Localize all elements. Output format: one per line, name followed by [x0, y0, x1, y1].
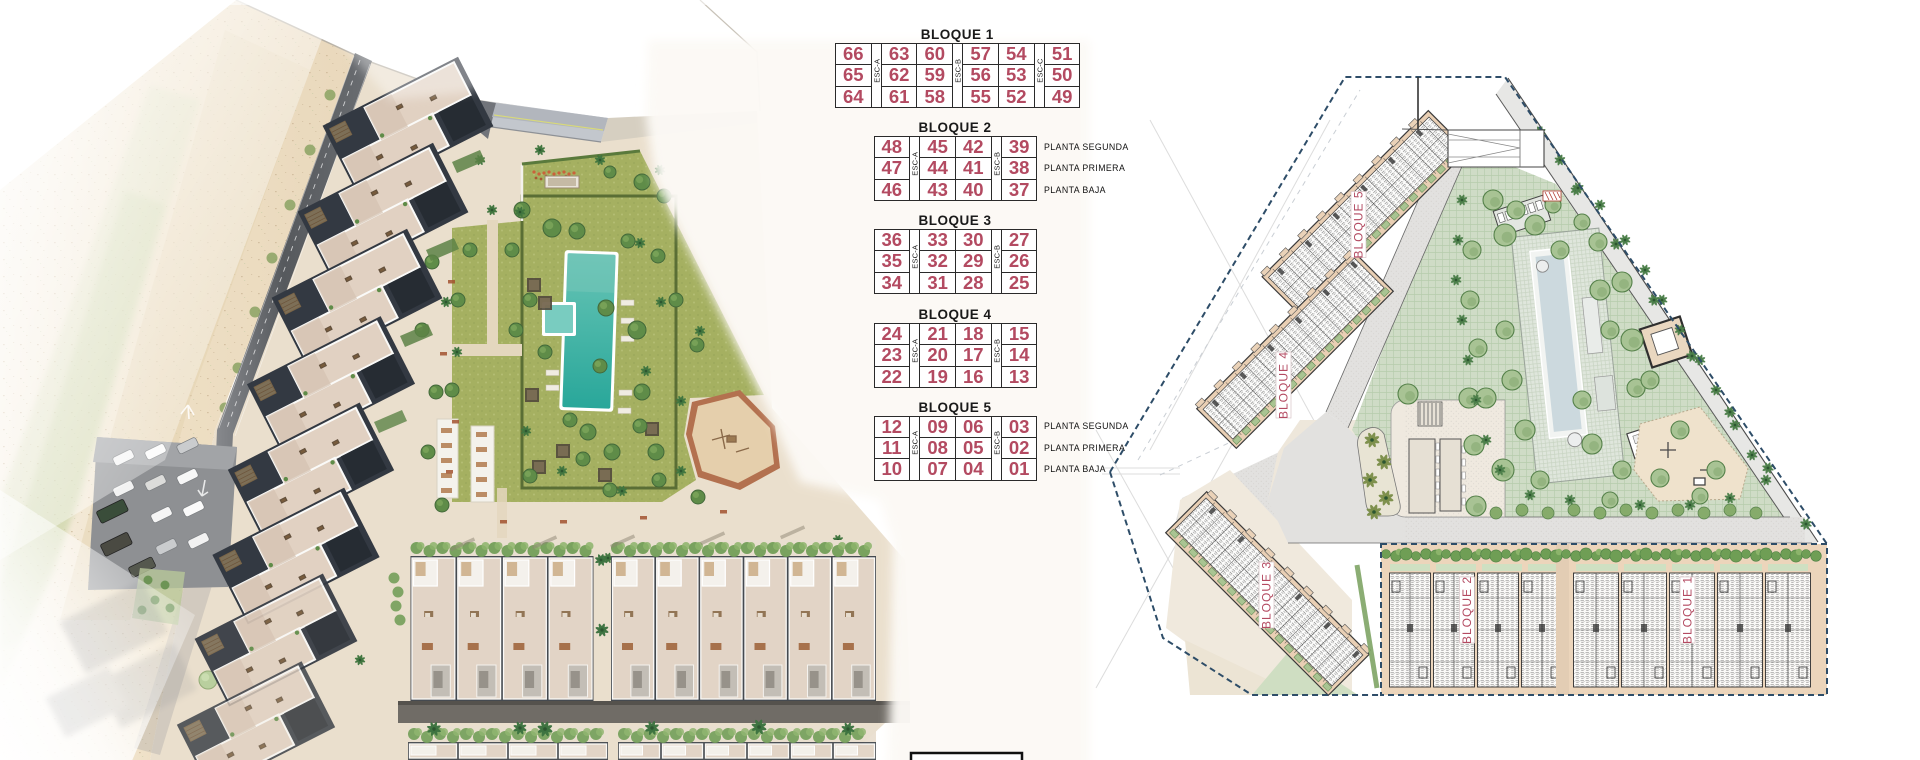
- svg-text:BLOQUE 5: BLOQUE 5: [1351, 190, 1365, 258]
- svg-text:BLOQUE 2: BLOQUE 2: [1460, 576, 1474, 644]
- svg-text:BLOQUE 3: BLOQUE 3: [1259, 561, 1273, 629]
- svg-text:BLOQUE 1: BLOQUE 1: [1680, 576, 1694, 644]
- svg-text:BLOQUE 4: BLOQUE 4: [1276, 351, 1290, 419]
